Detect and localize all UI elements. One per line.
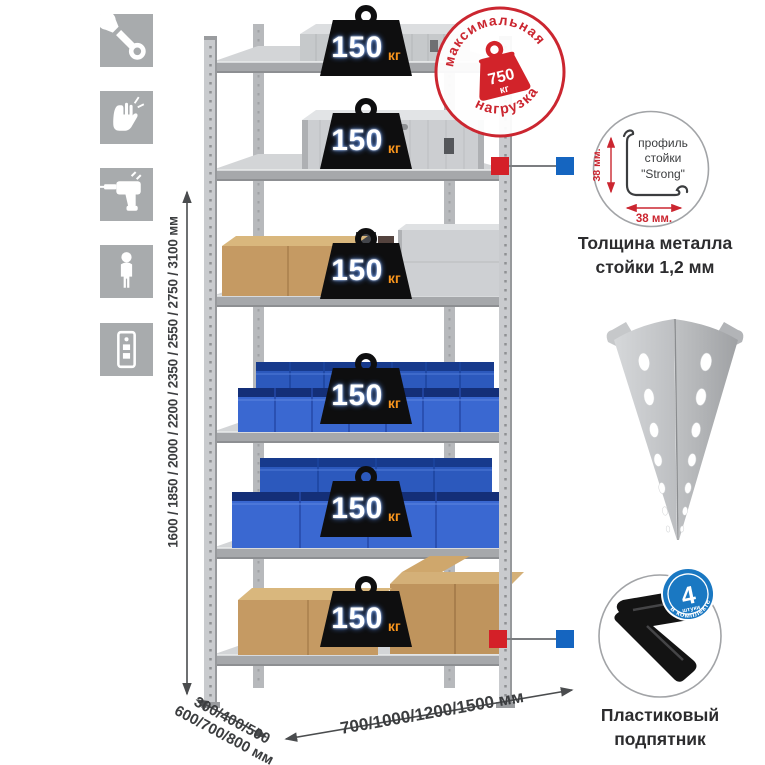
foot-connector — [489, 630, 574, 648]
load-unit: кг — [388, 395, 401, 411]
profile-dim-vertical: 38 мм. — [591, 148, 603, 181]
connector-red-square-top — [491, 157, 509, 175]
foot-caption: Пластиковый подпятник — [572, 703, 748, 751]
profile-callout: 38 мм. 38 мм. профиль стойки "Strong" — [581, 105, 721, 245]
weight-body: 150 кг — [320, 591, 412, 647]
load-value: 150 — [331, 379, 383, 413]
load-value: 150 — [331, 492, 383, 526]
product-infographic: 150 кг 150 кг 150 кг 150 кг 150 кг — [0, 0, 765, 765]
load-unit: кг — [388, 140, 401, 156]
weight-ring-icon — [355, 353, 377, 375]
shelf1-load-badge: 150 кг — [320, 5, 412, 76]
load-unit: кг — [388, 47, 401, 63]
weight-body: 150 кг — [320, 113, 412, 169]
shelf4-load-badge: 150 кг — [320, 353, 412, 424]
profile-dim-horizontal: 38 мм. — [636, 213, 672, 225]
profile-connector — [491, 157, 574, 175]
load-value: 150 — [331, 31, 383, 65]
shelf5-load-badge: 150 кг — [320, 466, 412, 537]
weight-body: 150 кг — [320, 20, 412, 76]
weight-body: 150 кг — [320, 243, 412, 299]
height-dimension-label: 1600 / 1850 / 2000 / 2200 / 2350 / 2550 … — [166, 216, 181, 548]
load-unit: кг — [388, 508, 401, 524]
weight-ring-icon — [355, 98, 377, 120]
weight-body: 150 кг — [320, 368, 412, 424]
max-load-stamp: максимальная нагрузка 750 кг — [431, 3, 569, 141]
foot-caption-line1: Пластиковый — [572, 703, 748, 727]
load-value: 150 — [331, 254, 383, 288]
foot-caption-line2: подпятник — [572, 727, 748, 751]
corner-post-image — [600, 302, 750, 542]
profile-caption-line2: стойки 1,2 мм — [567, 255, 743, 279]
connector-blue-square-top — [556, 157, 574, 175]
connector-blue-square-bottom — [556, 630, 574, 648]
shelf3-load-badge: 150 кг — [320, 228, 412, 299]
connector-red-square-bottom — [489, 630, 507, 648]
profile-label-1: профиль — [638, 136, 688, 150]
profile-label-3: "Strong" — [641, 167, 685, 181]
weight-ring-icon — [355, 5, 377, 27]
load-unit: кг — [388, 618, 401, 634]
weight-ring-icon — [355, 466, 377, 488]
profile-label-2: стойки — [645, 151, 682, 165]
load-value: 150 — [331, 124, 383, 158]
weight-body: 150 кг — [320, 481, 412, 537]
weight-ring-icon — [355, 228, 377, 250]
shelf2-load-badge: 150 кг — [320, 98, 412, 169]
load-value: 150 — [331, 602, 383, 636]
foot-callout: 4 штуки в комплекте — [593, 560, 743, 702]
weight-ring-icon — [355, 576, 377, 598]
profile-caption: Толщина металла стойки 1,2 мм — [567, 231, 743, 279]
load-unit: кг — [388, 270, 401, 286]
shelf6-load-badge: 150 кг — [320, 576, 412, 647]
profile-caption-line1: Толщина металла — [567, 231, 743, 255]
